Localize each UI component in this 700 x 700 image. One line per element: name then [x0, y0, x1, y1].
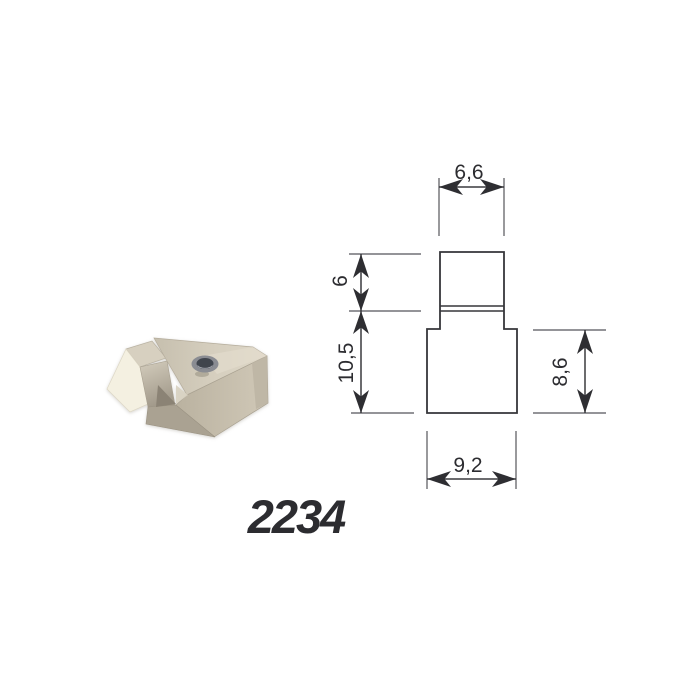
- card-graphic: 6,6 6 10,5 8,6 9,2 2234: [0, 0, 700, 700]
- dimension-drawing: 6,6 6 10,5 8,6 9,2: [329, 161, 606, 489]
- dimension-arrows: [353, 179, 593, 487]
- dim-total-height-label: 10,5: [335, 343, 358, 384]
- dim-top-width-label: 6,6: [454, 161, 483, 184]
- section-outline: [427, 252, 517, 413]
- part-photo: [107, 338, 268, 437]
- dimension-lines: [361, 187, 585, 479]
- dim-bottom-width-label: 9,2: [453, 454, 482, 477]
- part-number-label: 2234: [247, 490, 346, 543]
- hole-core: [197, 358, 214, 369]
- dim-upper-height-label: 6: [329, 275, 352, 287]
- extension-lines: [349, 178, 606, 489]
- product-card: 6,6 6 10,5 8,6 9,2 2234: [0, 0, 700, 700]
- dim-side-height-label: 8,6: [549, 357, 572, 386]
